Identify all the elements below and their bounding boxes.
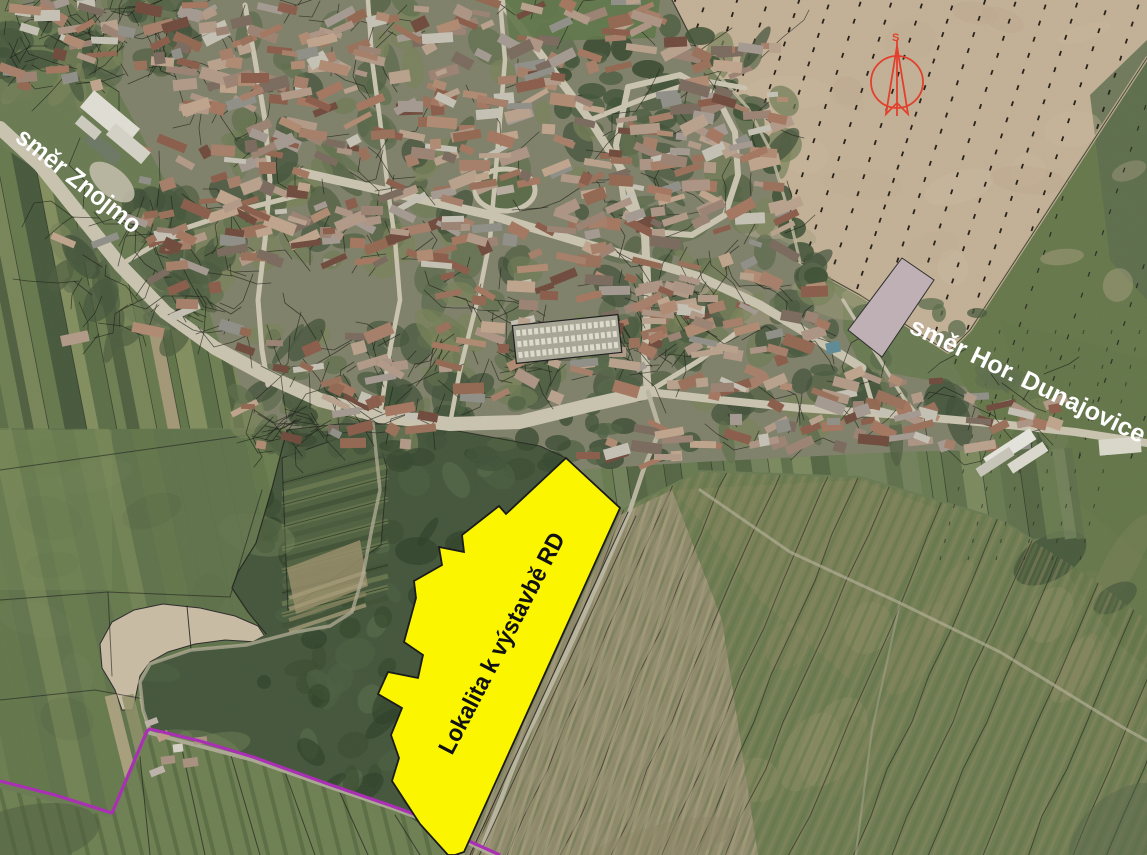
svg-text:S: S — [892, 32, 899, 44]
